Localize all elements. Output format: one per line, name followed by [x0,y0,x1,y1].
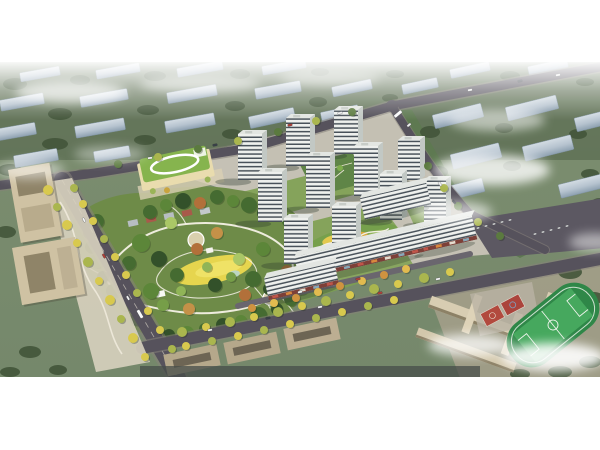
context-tree [49,365,67,375]
context-tree [19,346,41,358]
tree [160,199,172,211]
tree [245,271,261,287]
tree [496,232,504,240]
tree [133,289,141,297]
context-tree [0,367,20,377]
tree [314,288,322,296]
tree [227,195,239,207]
cloud [74,146,146,162]
tree [117,315,125,323]
tree [402,265,410,273]
tree [141,353,149,361]
tree [202,262,212,272]
tree [194,197,206,209]
tree [380,271,388,279]
tree [175,193,191,209]
tree [338,308,346,316]
tree [312,314,320,322]
tree [226,272,236,282]
tree [260,326,268,334]
tree [208,337,216,345]
tree [170,268,184,282]
tree [83,257,93,267]
context-tree [134,135,156,145]
tree [62,220,72,230]
tree [165,217,177,229]
tree [234,332,242,340]
tree [321,296,331,306]
tree [151,251,167,267]
tree [250,313,258,321]
tree [132,234,150,252]
tree [208,278,222,292]
tree [191,243,203,255]
aerial-render: Aerial architectural rendering of a resi… [0,62,600,377]
tree [270,299,278,307]
tree [233,253,245,265]
tree [144,307,152,315]
tree [182,342,190,350]
tree [105,295,115,305]
tree [100,235,108,243]
tree [154,153,162,161]
tree [364,302,372,310]
tree [248,304,256,312]
tree [143,205,157,219]
cloud [428,334,512,356]
tree [73,239,81,247]
car [148,157,153,160]
tree [176,286,186,296]
tree [156,326,164,334]
tree [183,303,195,315]
tree [241,197,257,213]
tree [292,294,300,302]
tree [157,299,169,311]
tree [143,283,159,299]
tree [394,280,402,288]
tree [168,345,176,353]
tree [256,242,270,256]
tree [43,185,53,195]
tree [79,200,87,208]
tree [210,190,224,204]
tree [274,128,282,136]
tree [336,282,344,290]
context-tree [42,138,68,150]
tree [53,203,61,211]
tree [424,162,432,170]
screenshot-canvas: Aerial architectural rendering of a resi… [0,0,600,450]
tree [211,227,223,239]
tree [177,327,187,337]
horizon-fog [0,62,600,120]
tree [369,284,379,294]
tree [234,137,242,145]
tree [194,145,202,153]
tree [111,253,119,261]
tree [446,268,454,276]
tree [273,307,283,317]
masterplan-rendering: Aerial architectural rendering of a resi… [0,62,600,377]
tree [298,302,306,310]
tree [286,320,294,328]
cloud [412,201,492,223]
tree [225,317,235,327]
tree [128,333,138,343]
tree [70,184,78,192]
tree [239,289,251,301]
tree [122,271,130,279]
tree [95,277,103,285]
tree [419,273,429,283]
cloud [434,155,550,185]
tree [89,217,97,225]
tree [390,296,398,304]
tree [346,291,354,299]
